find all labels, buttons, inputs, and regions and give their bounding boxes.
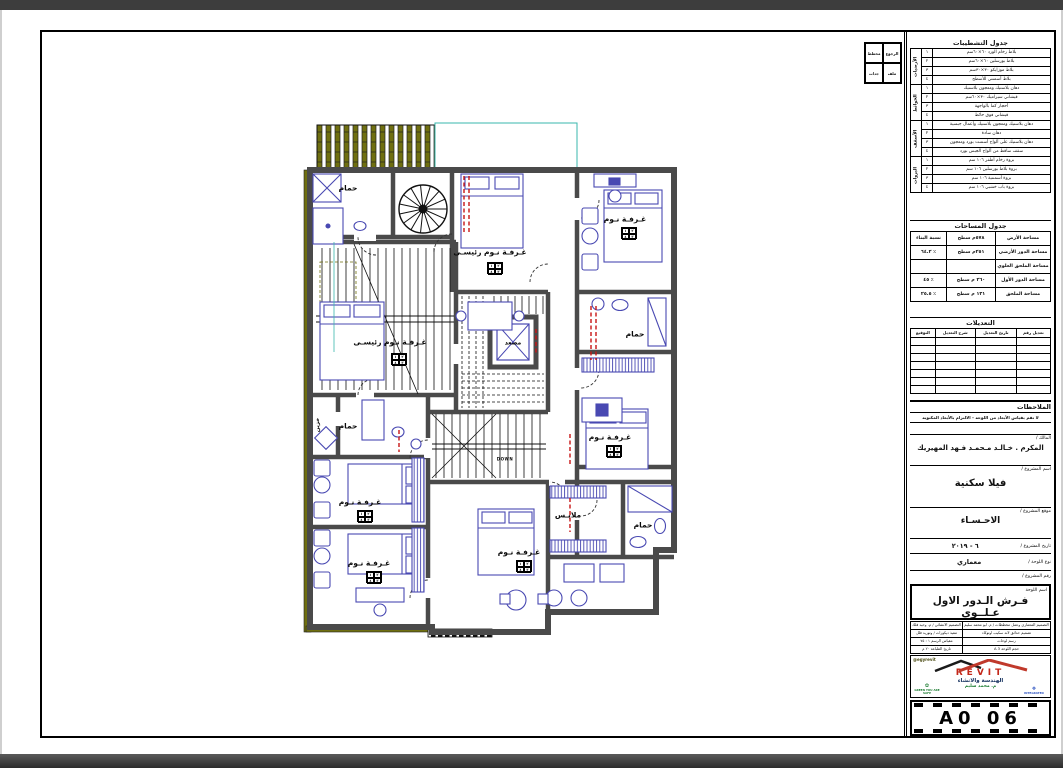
areas-value: ٢٦٠ م سطح (947, 273, 996, 287)
credits-cell: التصميم المعماري وعمل مخططات / م. ابو مح… (962, 621, 1050, 629)
window-bottom-bar (0, 754, 1063, 768)
finishes-num: ٤ (922, 112, 933, 121)
room-label-closet: ملابـس (555, 511, 581, 520)
finishes-group: الأرضيات (911, 49, 922, 85)
reference-cell: مخطط (865, 43, 883, 63)
revisions-cell (935, 345, 975, 353)
areas-value: ٢٥١م سطح (947, 245, 996, 259)
finishes-num: ٢ (922, 130, 933, 139)
credits-row: التصميم المعماري وعمل مخططات / م. ابو مح… (911, 621, 1051, 629)
finishes-desc: دهان بلاستيك ومعجون بلاستيك وأعمال جبسية (933, 121, 1051, 130)
areas-table: مساحة الأرض٥٧٨م سطحنسبة البناءمساحة الدو… (911, 231, 1051, 301)
revisions-header-row: تعديل رقمتاريخ التعديلشرح التعديلالتوقيع (911, 328, 1051, 337)
green-badge-icon: ✿GREEN YOU ARE SAFE (913, 683, 941, 696)
areas-value: ١٣١ م سطح (947, 287, 996, 301)
finishes-section: جدول التشطيبات بلاط رخام الورد ٦٠×٦٠سم١ا… (910, 32, 1051, 210)
areas-label: مساحة الأرض (996, 231, 1051, 245)
firm-logo: @egyrevit REVIT الهندسة والانشاء م. محمد… (910, 655, 1051, 699)
areas-section: جدول المساحات مساحة الأرض٥٧٨م سطحنسبة ال… (910, 220, 1051, 317)
room-tag: ١٢٤٣ (606, 445, 622, 457)
location-label: موقع المشروع / (910, 508, 1051, 514)
integrated-badge-icon: ❖INTEGRATED (1020, 686, 1048, 695)
areas-row: مساحة الملحق١٣١ م سطح٪ ٢٥.٥ (911, 287, 1051, 301)
areas-value: ٥٧٨م سطح (947, 231, 996, 245)
finishes-row: بلاط رخام الورد ٦٠×٦٠سم١الأرضيات (911, 49, 1051, 58)
revisions-empty-row (911, 337, 1051, 345)
room-label-bedroom: غـرفـة نـوم (348, 559, 391, 568)
room-label-bedroom: غـرفـة نـوم (339, 498, 382, 507)
project-number-label: رقم المشروع / (1022, 574, 1051, 579)
revisions-cell (975, 369, 1016, 377)
revisions-cell (911, 337, 936, 345)
revisions-cell (911, 377, 936, 385)
sheet-name-box: اسم اللوحة فـرش الـدور الاول عـلــوى (910, 584, 1051, 620)
finishes-desc: بروة أسمنتية ١٠٦ سم (933, 175, 1051, 184)
revisions-cell (1016, 361, 1050, 369)
revisions-empty-row (911, 361, 1051, 369)
credits-section: التصميم المعماري وعمل مخططات / م. ابو مح… (910, 621, 1051, 654)
room-tag: ١٢٤٣ (357, 510, 373, 522)
revisions-cell (935, 369, 975, 377)
finishes-num: ٣ (922, 139, 933, 148)
revisions-cell (1016, 353, 1050, 361)
room-tag-cell: ٤ (358, 517, 365, 523)
room-tag: ١٢٤٣ (366, 571, 382, 583)
revisions-cell (935, 361, 975, 369)
floor-plan: حمام غـرفـة نـوم رئيسـى غـرفـة نـوم غـرف… (298, 112, 698, 652)
finishes-num: ٤ (922, 184, 933, 193)
owner-section: المالك / المكرم . خـالـد مـحمـد فـهد الم… (910, 434, 1051, 466)
room-label-bathroom: حمام (339, 422, 358, 431)
revisions-cell (935, 385, 975, 393)
finishes-row: بروة بلاط بورسلين ١٠٦ سم٢ (911, 166, 1051, 175)
finishes-num: ٣ (922, 67, 933, 76)
finishes-desc: أحجار كما بالواجهة (933, 103, 1051, 112)
room-tag-cell: ٣ (365, 517, 372, 523)
revisions-cell (911, 345, 936, 353)
finishes-title: جدول التشطيبات (910, 38, 1051, 48)
areas-label: مساحة الدور الأول (996, 273, 1051, 287)
project-number-row: رقم المشروع / (910, 570, 1051, 583)
room-label-bedroom: غـرفـة نـوم (498, 548, 541, 557)
room-tag-cell: ٤ (622, 234, 629, 240)
credits-cell: تصميم حدائق لاند سكيب اوتوكاد (962, 629, 1050, 637)
finishes-desc: بلاط رخام الورد ٦٠×٦٠سم (933, 49, 1051, 58)
areas-value (947, 259, 996, 273)
finishes-row: دهان سادة٢ (911, 130, 1051, 139)
room-tag-cell: ٤ (488, 269, 495, 275)
sheet-type-row: نوع اللوحة / معماري (910, 553, 1051, 570)
areas-label: مساحة الدور الأرضي (996, 245, 1051, 259)
room-label-master-bedroom: غـرفـة نـوم رئيسـى (453, 248, 526, 257)
date-value: ٦ - ٢٠١٩ (910, 542, 1020, 550)
revisions-empty-row (911, 345, 1051, 353)
areas-label: مساحة الملحق (996, 287, 1051, 301)
room-tag-cell: ٣ (374, 578, 381, 584)
revisions-cell (975, 353, 1016, 361)
revisions-empty-row (911, 377, 1051, 385)
areas-row: مساحة الدور الأرضي٢٥١م سطح٪ ٦٤.٢ (911, 245, 1051, 259)
pergola-hatch (317, 125, 435, 172)
room-tag-cell: ٣ (629, 234, 636, 240)
finishes-group: الأسقف (911, 121, 922, 157)
room-label-bathroom: حمام (634, 521, 653, 530)
finishes-desc: بلاط أسمنتي للأسطح (933, 76, 1051, 85)
areas-ratio (911, 259, 947, 273)
reference-cell: الرجوع (883, 43, 901, 63)
finishes-num: ٤ (922, 76, 933, 85)
credits-cell: التصميم الانشائي / م. وحيد فلك (911, 621, 963, 629)
sheet-type-label: نوع اللوحة / (1028, 560, 1051, 565)
finishes-row: بروة باب خشبي ١٠٦ سم٤ (911, 184, 1051, 193)
sheet-name-label: اسم اللوحة (914, 587, 1047, 593)
window-left-edge (0, 10, 2, 754)
room-tag: ١٢٤٣ (391, 353, 407, 365)
revisions-cell (1016, 385, 1050, 393)
finishes-row: دهان بلاستيك على ألواح أسمنت بورد ومعجون… (911, 139, 1051, 148)
revisions-header-cell: تاريخ التعديل (975, 328, 1016, 337)
finishes-row: قيشاني سيراميك ٣٠×٦٠سم٢ (911, 94, 1051, 103)
finishes-row: سقف ساقط من ألواح الجبس بورد٤ (911, 148, 1051, 157)
window-top-bar (0, 0, 1063, 10)
date-label: تاريخ المشروع / (1020, 544, 1051, 549)
areas-label: مساحة الملحق العلوي (996, 259, 1051, 273)
credits-cell: رسم لوحات (962, 637, 1050, 645)
project-section: اسم المشروع / فيلا سكنية (910, 465, 1051, 507)
credits-cell: مقياس الرسم ١ : ٧٥ (911, 637, 963, 645)
room-label-bathroom: حمام (626, 330, 645, 339)
revisions-empty-row (911, 385, 1051, 393)
finishes-row: بروة رخام أظفر ١٠٦ سم١البروات (911, 157, 1051, 166)
revisions-header-cell: التوقيع (911, 328, 936, 337)
stair-down-label: DOWN (497, 457, 513, 462)
finishes-desc: بروة باب خشبي ١٠٦ سم (933, 184, 1051, 193)
revisions-header-cell: تعديل رقم (1016, 328, 1050, 337)
revisions-cell (975, 385, 1016, 393)
areas-ratio: ٪ ٤٥ (911, 273, 947, 287)
revisions-cell (911, 385, 936, 393)
sheet-number-box: A0 06 (910, 700, 1051, 736)
finishes-row: دهان بلاستيك ومعجون بلاستيك وأعمال جبسية… (911, 121, 1051, 130)
credits-cell: حجم اللوحة A 3 (962, 645, 1050, 653)
finishes-row: بلاط موزايكو ٣٠×٣٠سم٣ (911, 67, 1051, 76)
finishes-row: بلاط بورسلين ٦٠×٦٠سم٢ (911, 58, 1051, 67)
notes-section: الملاحظات لا تقم بقياس الأبعاد من اللوحة… (910, 400, 1051, 434)
finishes-desc: بروة رخام أظفر ١٠٦ سم (933, 157, 1051, 166)
revisions-header-cell: شرح التعديل (935, 328, 975, 337)
areas-ratio: ٪ ٢٥.٥ (911, 287, 947, 301)
finishes-desc: دهان بلاستيك على ألواح أسمنت بورد ومعجون (933, 139, 1051, 148)
room-tag-cell: ٣ (614, 452, 621, 458)
reference-cell: جدات (865, 63, 883, 83)
secondary-stair (432, 414, 546, 478)
room-tag: ١٢٤٣ (516, 560, 532, 572)
room-tag-cell: ٣ (524, 567, 531, 573)
finishes-num: ٢ (922, 166, 933, 175)
terrace-outline (435, 123, 577, 172)
finishes-num: ٢ (922, 94, 933, 103)
note-text: لا تقم بقياس الأبعاد من اللوحة - الالتزا… (910, 412, 1051, 423)
revisions-cell (935, 353, 975, 361)
room-tag: ١٢٤٣ (487, 262, 503, 274)
sheet-number: A0 06 (912, 702, 1049, 734)
room-tag-cell: ٤ (367, 578, 374, 584)
revisions-cell (935, 377, 975, 385)
room-label-bedroom: غـرفـة نـوم (589, 433, 632, 442)
revisions-cell (911, 353, 936, 361)
revisions-title: التعديلات (910, 318, 1051, 328)
finishes-desc: بلاط بورسلين ٦٠×٦٠سم (933, 58, 1051, 67)
room-label-bedroom: غـرفـة نـوم (604, 215, 647, 224)
finishes-group: البروات (911, 157, 922, 193)
finishes-desc: سقف ساقط من ألواح الجبس بورد (933, 148, 1051, 157)
spiral-stair (399, 185, 447, 233)
finishes-desc: قيشاني سيراميك ٣٠×٦٠سم (933, 94, 1051, 103)
location-value: الاحـسـاء (910, 516, 1051, 526)
revisions-cell (911, 361, 936, 369)
revisions-cell (975, 337, 1016, 345)
finishes-row: قيشاني فوق حائط٤ (911, 112, 1051, 121)
room-label-elevator: مصعد (505, 340, 521, 347)
finishes-desc: بروة بلاط بورسلين ١٠٦ سم (933, 166, 1051, 175)
credits-row: تصميم حدائق لاند سكيب اوتوكادتنفيذ ديكور… (911, 629, 1051, 637)
finishes-table: بلاط رخام الورد ٦٠×٦٠سم١الأرضياتبلاط بور… (911, 49, 1051, 193)
reference-mini-table: الرجوع مخطط ملف جدات (864, 42, 902, 84)
finishes-num: ١ (922, 49, 933, 58)
areas-row: مساحة الملحق العلوي (911, 259, 1051, 273)
areas-ratio: ٪ ٦٤.٢ (911, 245, 947, 259)
finishes-num: ١ (922, 85, 933, 94)
sheet-name-value: فـرش الـدور الاول عـلــوى (914, 595, 1047, 619)
reference-cell: ملف (883, 63, 901, 83)
areas-row: مساحة الدور الأول٢٦٠ م سطح٪ ٤٥ (911, 273, 1051, 287)
revisions-cell (935, 337, 975, 345)
finishes-num: ٤ (922, 148, 933, 157)
location-section: موقع المشروع / الاحـسـاء (910, 507, 1051, 539)
drawing-sheet: الرجوع مخطط ملف جدات (40, 30, 1056, 738)
finishes-desc: دهان بلاستيك ومعجون بلاستيك (933, 85, 1051, 94)
finishes-desc: دهان سادة (933, 130, 1051, 139)
revisions-cell (1016, 369, 1050, 377)
finishes-row: دهان بلاستيك ومعجون بلاستيك١الحوائط (911, 85, 1051, 94)
date-row: تاريخ المشروع / ٦ - ٢٠١٩ (910, 538, 1051, 553)
credits-row: حجم اللوحة A 3تاريخ الطباعة ٢٠ م (911, 645, 1051, 653)
finishes-desc: قيشاني فوق حائط (933, 112, 1051, 121)
room-label-storage: خزين (315, 418, 321, 432)
floor-plan-svg (298, 112, 698, 652)
areas-title: جدول المساحات (910, 221, 1051, 231)
revisions-cell (975, 377, 1016, 385)
credits-cell: تنفيذ ديكورات / وتوريد فلل (911, 629, 963, 637)
revisions-cell (975, 361, 1016, 369)
room-tag: ١٢٤٣ (621, 227, 637, 239)
revisions-cell (975, 345, 1016, 353)
room-tag-cell: ٤ (607, 452, 614, 458)
finishes-row: بروة أسمنتية ١٠٦ سم٣ (911, 175, 1051, 184)
revisions-cell (1016, 345, 1050, 353)
finishes-num: ٣ (922, 103, 933, 112)
finishes-row: أحجار كما بالواجهة٣ (911, 103, 1051, 112)
finishes-row: بلاط أسمنتي للأسطح٤ (911, 76, 1051, 85)
areas-row: مساحة الأرض٥٧٨م سطحنسبة البناء (911, 231, 1051, 245)
room-label-master-bedroom: غـرفـة نـوم رئيسـى (353, 338, 426, 347)
roof-icon (931, 657, 1031, 676)
areas-ratio: نسبة البناء (911, 231, 947, 245)
owner-label: المالك / (910, 435, 1051, 441)
room-label-bathroom: حمام (339, 184, 358, 193)
owner-name: المكرم . خـالـد مـحمـد فـهد المهيريك (910, 444, 1051, 452)
room-tag-cell: ٣ (399, 360, 406, 366)
notes-title: الملاحظات (910, 402, 1051, 412)
finishes-num: ٣ (922, 175, 933, 184)
revisions-cell (911, 369, 936, 377)
finishes-group: الحوائط (911, 85, 922, 121)
credits-table: التصميم المعماري وعمل مخططات / م. ابو مح… (911, 621, 1051, 653)
room-tag-cell: ٤ (392, 360, 399, 366)
finishes-desc: بلاط موزايكو ٣٠×٣٠سم (933, 67, 1051, 76)
finishes-num: ١ (922, 121, 933, 130)
project-name: فيلا سكنية (910, 478, 1051, 489)
project-label: اسم المشروع / (910, 466, 1051, 472)
revisions-cell (1016, 377, 1050, 385)
revisions-section: التعديلات تعديل رقمتاريخ التعديلشرح التع… (910, 317, 1051, 400)
revisions-empty-row (911, 353, 1051, 361)
credits-row: رسم لوحاتمقياس الرسم ١ : ٧٥ (911, 637, 1051, 645)
revisions-cell (1016, 337, 1050, 345)
finishes-num: ١ (922, 157, 933, 166)
viewer-canvas: { "corner_box": { "cells": ["الرجوع", "م… (0, 0, 1063, 768)
sheet-type-value: معماري (910, 558, 1028, 566)
title-block: جدول التشطيبات بلاط رخام الورد ٦٠×٦٠سم١ا… (904, 32, 1054, 736)
revisions-empty-row (911, 369, 1051, 377)
revisions-table: تعديل رقمتاريخ التعديلشرح التعديلالتوقيع (911, 328, 1051, 393)
finishes-num: ٢ (922, 58, 933, 67)
room-tag-cell: ٣ (495, 269, 502, 275)
room-tag-cell: ٤ (517, 567, 524, 573)
credits-cell: تاريخ الطباعة ٢٠ م (911, 645, 963, 653)
